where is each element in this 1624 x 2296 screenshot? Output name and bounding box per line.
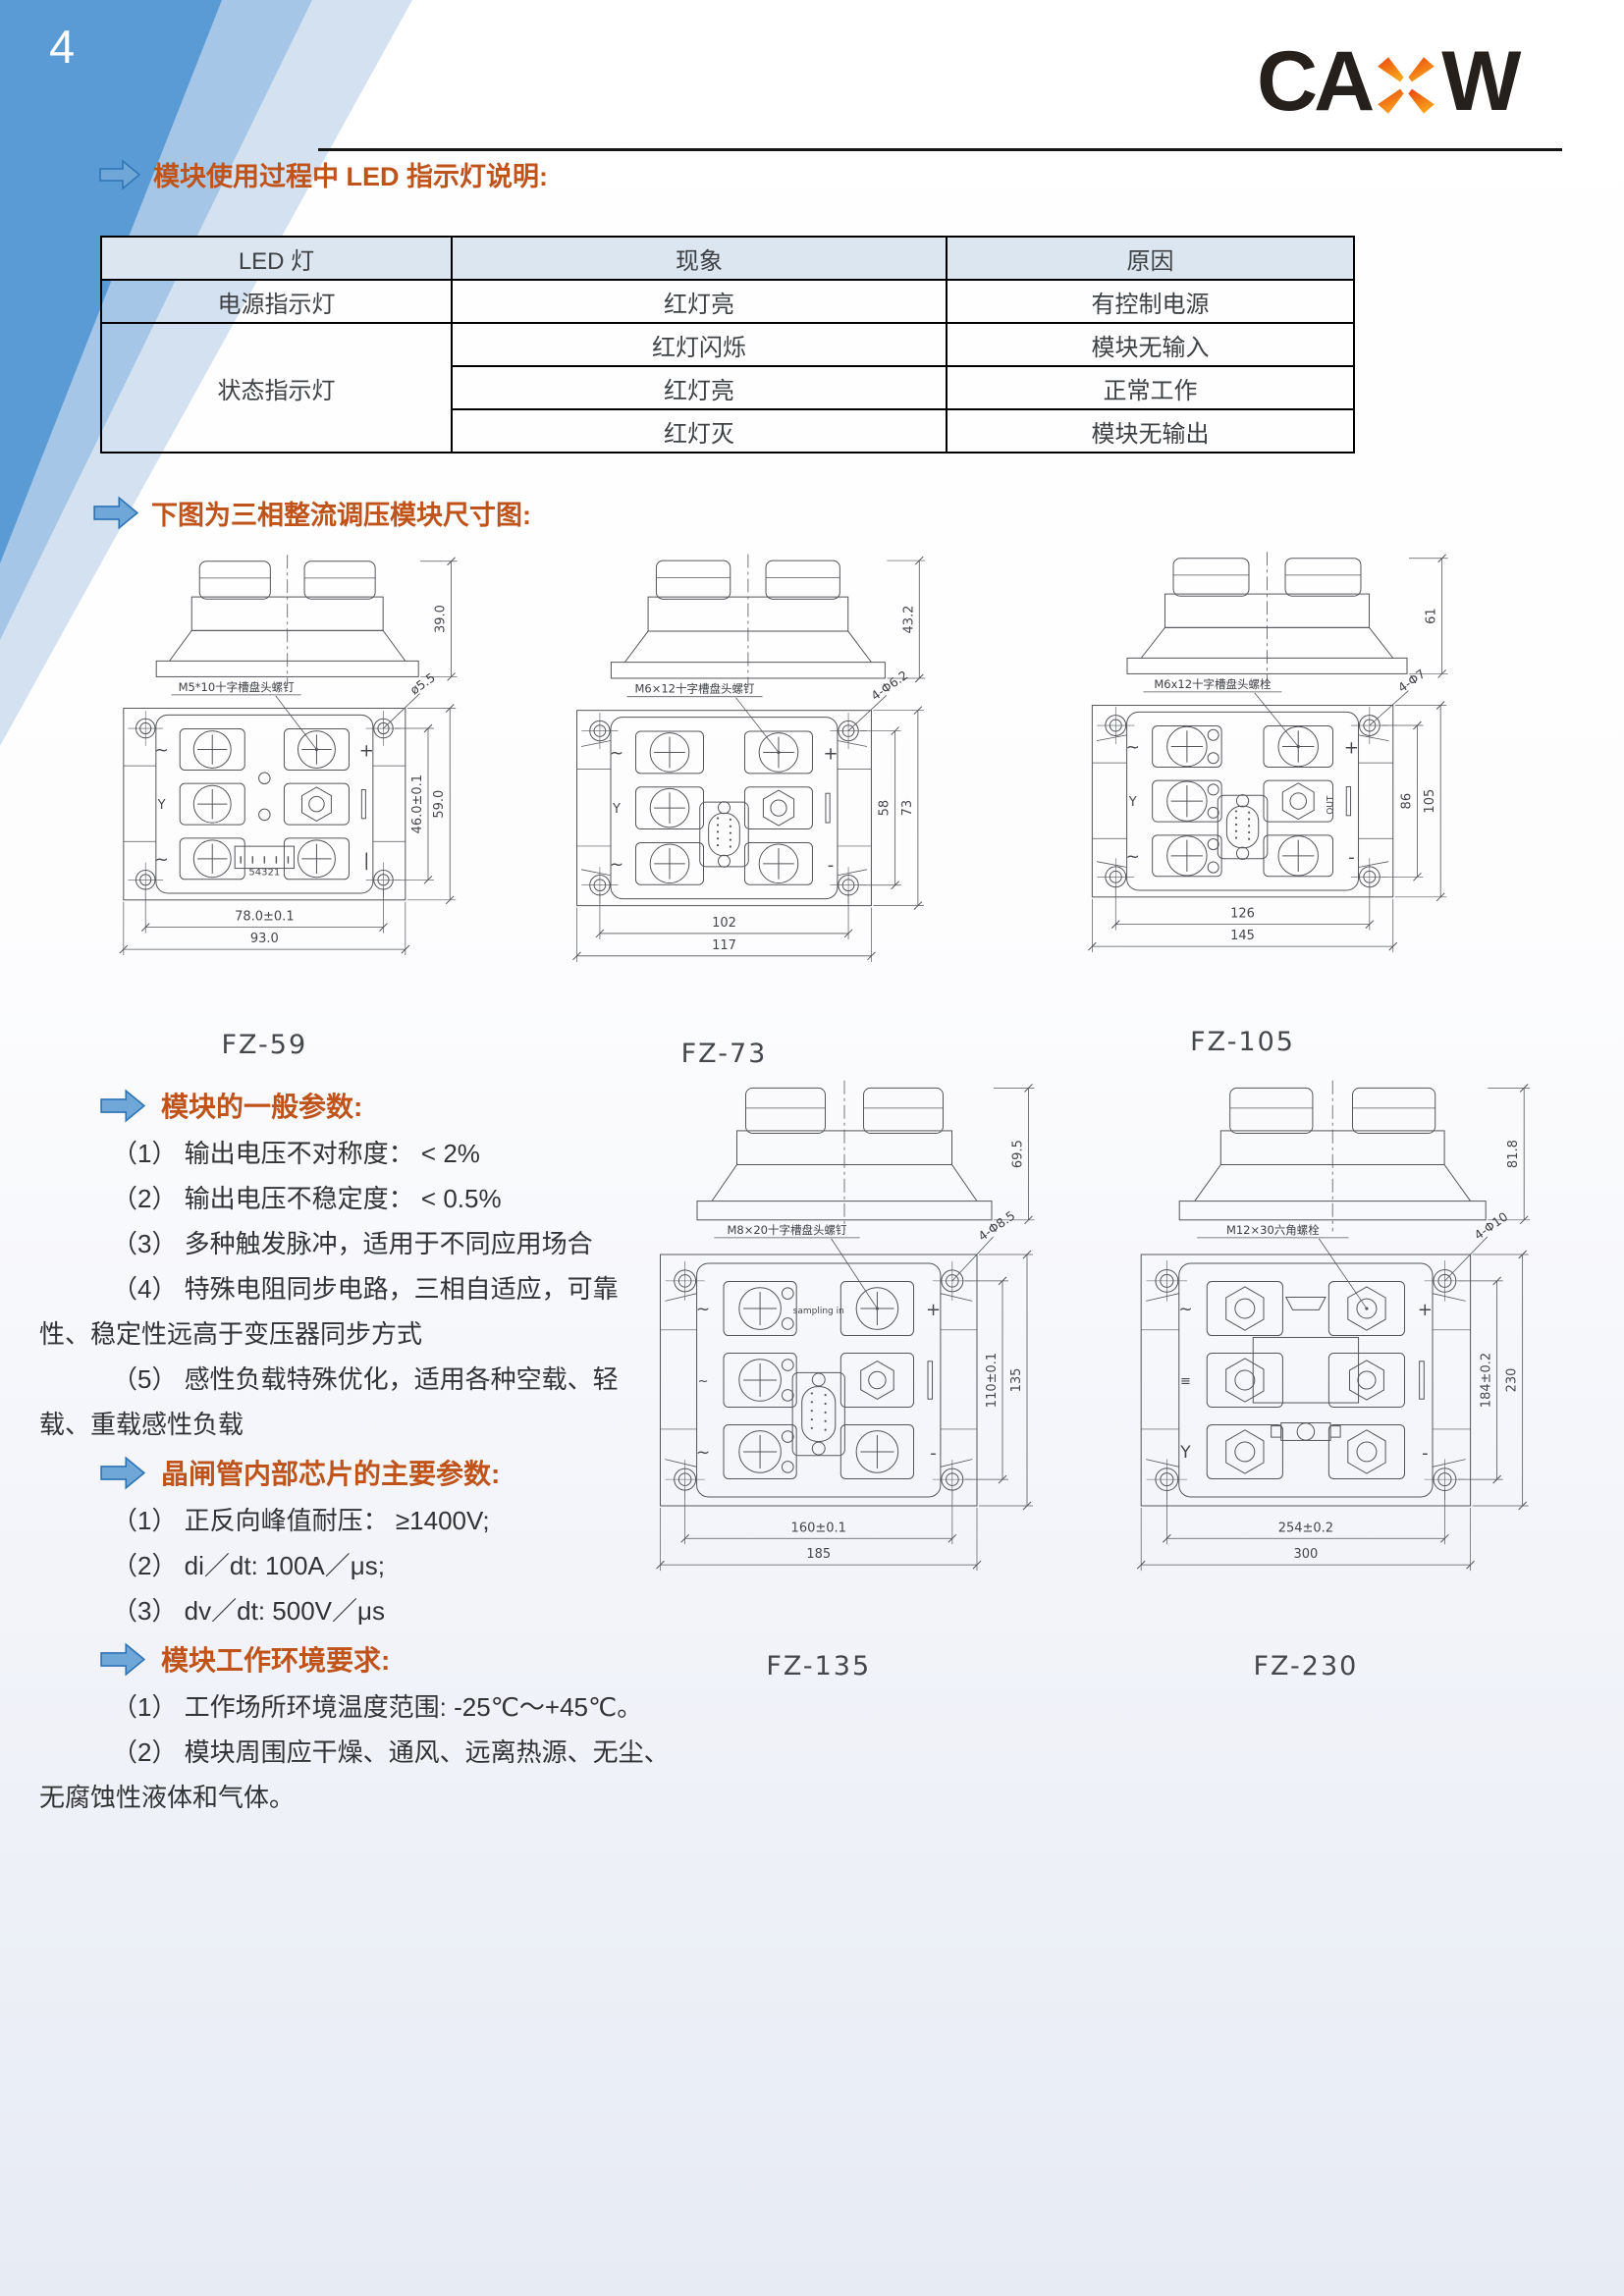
- section-heading-dims: 下图为三相整流调压模块尺寸图:: [93, 494, 531, 532]
- drawing-text: +: [1418, 1300, 1433, 1320]
- phenomenon-cell: 红灯闪烁: [452, 323, 947, 366]
- section-heading-environment: 模块工作环境要求:: [100, 1633, 628, 1684]
- col-header-reason: 原因: [947, 237, 1354, 280]
- parameters-column: 模块的一般参数: （1） 输出电压不对称度： < 2%（2） 输出电压不稳定度：…: [39, 1080, 628, 1820]
- drawing-text: 300: [1293, 1547, 1318, 1562]
- drawing-text: ~: [1126, 847, 1140, 867]
- arrow-icon: [99, 159, 140, 190]
- table-header-row: LED 灯 现象 原因: [101, 237, 1354, 280]
- drawing-text: ~: [696, 1300, 710, 1319]
- drawing-text: ~: [610, 855, 623, 875]
- drawing-text: Y: [1179, 1443, 1191, 1463]
- drawing-text: Y: [157, 798, 166, 813]
- table-row: 电源指示灯红灯亮有控制电源: [101, 280, 1354, 323]
- param-line: （1） 输出电压不对称度： < 2%: [112, 1131, 628, 1176]
- phenomenon-cell: 红灯灭: [452, 409, 947, 453]
- drawing-text: 135: [1009, 1368, 1024, 1393]
- section-heading-general-label: 模块的一般参数:: [161, 1086, 362, 1125]
- drawing-text: Y: [1128, 795, 1137, 810]
- param-line: 载、重载感性负载: [39, 1402, 628, 1447]
- drawing-text: +: [1344, 738, 1359, 759]
- logo-text-w: W: [1441, 39, 1517, 124]
- drawing-text: -: [930, 1443, 937, 1464]
- section-heading-led: 模块使用过程中 LED 指示灯说明:: [99, 155, 548, 193]
- drawing-text: 254±0.2: [1278, 1521, 1333, 1535]
- drawing-text: 39.0: [434, 605, 449, 633]
- drawing-text: 93.0: [250, 932, 279, 946]
- phenomenon-cell: 红灯亮: [452, 280, 947, 323]
- drawing-text: 58: [878, 800, 893, 817]
- phenomenon-cell: 红灯亮: [452, 366, 947, 409]
- hole-spec-label: 4-Φ6.2: [868, 667, 910, 703]
- section-heading-environment-label: 模块工作环境要求:: [161, 1639, 390, 1679]
- fz230-drawing: 81.8~≡Y+-M12×30六角螺栓4-Φ10184±0.2230254±0.…: [1098, 1066, 1608, 1694]
- fz135-drawing: 69.5~~~+-sampling inM8×20十字槽盘头螺钉4-Φ8.511…: [619, 1066, 1110, 1694]
- drawing-text: Y: [612, 802, 621, 817]
- drawing-text: sampling in: [793, 1307, 844, 1316]
- param-line: （5） 感性负载特殊优化，适用各种空载、轻: [112, 1357, 628, 1402]
- drawing-text: 81.8: [1506, 1140, 1521, 1168]
- section-heading-thyristor: 晶闸管内部芯片的主要参数:: [100, 1447, 628, 1498]
- param-line: （3） 多种触发脉冲，适用于不同应用场合: [112, 1221, 628, 1266]
- reason-cell: 正常工作: [947, 366, 1354, 409]
- section-heading-dims-label: 下图为三相整流调压模块尺寸图:: [151, 494, 531, 532]
- drawing-text: ~: [1178, 1300, 1192, 1319]
- thyristor-params-list: （1） 正反向峰值耐压： ≥1400V;（2） di／dt: 100A／μs;（…: [39, 1498, 628, 1633]
- led-name-cell: 电源指示灯: [101, 280, 452, 323]
- drawing-text: 43.2: [901, 606, 916, 634]
- param-line: （3） dv／dt: 500V／μs: [112, 1588, 628, 1633]
- drawing-text: 230: [1505, 1368, 1520, 1393]
- drawing-text: 102: [712, 916, 736, 931]
- drawing-text: 61: [1425, 608, 1439, 624]
- drawing-text: 69.5: [1011, 1140, 1026, 1168]
- header-divider: [318, 148, 1562, 151]
- drawing-text: ~: [610, 743, 623, 763]
- drawing-text: 78.0±0.1: [235, 910, 295, 925]
- logo-x-icon: [1377, 56, 1435, 115]
- param-line: （2） di／dt: 100A／μs;: [112, 1543, 628, 1588]
- arrow-icon: [100, 1456, 145, 1490]
- drawing-text: 59.0: [432, 790, 447, 819]
- logo-text-ca: CA: [1257, 39, 1371, 124]
- screw-spec-label: M6×12十字槽盘头螺钉: [634, 682, 755, 696]
- environment-params-list: （1） 工作场所环境温度范围: -25℃～+45℃。（2） 模块周围应干燥、通风…: [39, 1684, 628, 1820]
- section-heading-general: 模块的一般参数:: [100, 1080, 628, 1131]
- drawing-text: |: [363, 850, 369, 871]
- param-line: （2） 模块周围应干燥、通风、远离热源、无尘、: [112, 1730, 628, 1775]
- screw-spec-label: M12×30六角螺栓: [1226, 1223, 1320, 1237]
- arrow-icon: [93, 496, 138, 530]
- param-line: （1） 正反向峰值耐压： ≥1400V;: [112, 1498, 628, 1543]
- drawing-text: 184±0.2: [1480, 1353, 1494, 1408]
- drawing-text: 117: [712, 938, 736, 953]
- drawing-text: ≡: [1180, 1374, 1191, 1389]
- arrow-icon: [100, 1642, 145, 1677]
- param-line: （1） 工作场所环境温度范围: -25℃～+45℃。: [112, 1684, 628, 1730]
- fz105-drawing: 61~Y~+-OUTM6x12十字槽盘头螺栓4-Φ786105126145FZ-…: [1053, 540, 1519, 1065]
- reason-cell: 有控制电源: [947, 280, 1354, 323]
- led-indicator-table: LED 灯 现象 原因 电源指示灯红灯亮有控制电源状态指示灯红灯闪烁模块无输入红…: [100, 236, 1355, 454]
- hole-spec-label: 4-Φ10: [1471, 1209, 1510, 1243]
- drawing-text: ~: [696, 1443, 710, 1463]
- section-heading-thyristor-label: 晶闸管内部芯片的主要参数:: [161, 1453, 500, 1492]
- drawing-text: +: [359, 741, 374, 762]
- arrow-icon: [100, 1089, 145, 1123]
- module-label: FZ-59: [222, 1030, 308, 1060]
- drawing-text: 46.0±0.1: [410, 774, 425, 834]
- param-line: 无腐蚀性液体和气体。: [39, 1775, 628, 1820]
- led-table-body: 电源指示灯红灯亮有控制电源状态指示灯红灯闪烁模块无输入红灯亮正常工作红灯灭模块无…: [101, 280, 1354, 453]
- drawing-text: 145: [1230, 929, 1255, 943]
- drawing-text: OUT: [1326, 795, 1335, 815]
- hole-spec-label: 4-Φ7: [1395, 667, 1428, 696]
- drawing-text: ~: [154, 741, 168, 761]
- general-params-list: （1） 输出电压不对称度： < 2%（2） 输出电压不稳定度： < 0.5%（3…: [39, 1131, 628, 1447]
- reason-cell: 模块无输出: [947, 409, 1354, 453]
- drawing-text: 54321: [248, 867, 280, 878]
- module-label: FZ-73: [681, 1039, 768, 1069]
- company-logo: CA W: [1257, 39, 1517, 124]
- col-header-phenomenon: 现象: [452, 237, 947, 280]
- reason-cell: 模块无输入: [947, 323, 1354, 366]
- hole-spec-label: 4-Φ8.5: [975, 1207, 1017, 1243]
- module-label: FZ-105: [1190, 1027, 1295, 1057]
- drawing-text: 110±0.1: [985, 1353, 1000, 1408]
- module-label: FZ-135: [766, 1651, 871, 1682]
- screw-spec-label: M8×20十字槽盘头螺钉: [727, 1223, 847, 1237]
- param-line: （2） 输出电压不稳定度： < 0.5%: [112, 1176, 628, 1221]
- drawing-text: -: [828, 855, 835, 876]
- drawing-text: ~: [698, 1374, 709, 1389]
- drawing-text: -: [1348, 847, 1355, 868]
- drawing-text: 105: [1423, 789, 1437, 814]
- screw-spec-label: M6x12十字槽盘头螺栓: [1154, 677, 1272, 691]
- section-heading-led-label: 模块使用过程中 LED 指示灯说明:: [153, 155, 548, 193]
- screw-spec-label: M5*10十字槽盘头螺钉: [179, 680, 296, 694]
- page-number: 4: [49, 20, 75, 74]
- drawing-text: 86: [1399, 793, 1414, 810]
- datasheet-page: 4 CA W 模块使用过程中 LED 指示灯说明: LED 灯 现象: [0, 0, 1624, 2296]
- param-line: 性、稳定性远高于变压器同步方式: [39, 1311, 628, 1357]
- drawing-text: ~: [1126, 738, 1140, 758]
- drawing-text: -: [1422, 1443, 1429, 1464]
- fz59-drawing: 39.0~Y~+|54321M5*10十字槽盘头螺钉ø5.546.0±0.159…: [86, 543, 523, 1068]
- drawing-text: +: [926, 1300, 941, 1320]
- module-label: FZ-230: [1253, 1651, 1358, 1682]
- drawing-text: 126: [1230, 907, 1255, 922]
- drawing-text: ~: [154, 850, 168, 870]
- drawing-text: 73: [900, 800, 915, 817]
- param-line: （4） 特殊电阻同步电路，三相自适应，可靠: [112, 1266, 628, 1311]
- fz73-drawing: 43.2~Y~+-M6×12十字槽盘头螺钉4-Φ6.25873102117FZ-…: [538, 542, 995, 1077]
- hole-spec-label: ø5.5: [407, 669, 438, 697]
- led-name-cell: 状态指示灯: [101, 323, 452, 453]
- drawing-text: 160±0.1: [791, 1521, 846, 1535]
- drawing-text: 185: [806, 1547, 831, 1562]
- table-row: 状态指示灯红灯闪烁模块无输入: [101, 323, 1354, 366]
- col-header-led: LED 灯: [101, 237, 452, 280]
- drawing-text: +: [824, 743, 839, 764]
